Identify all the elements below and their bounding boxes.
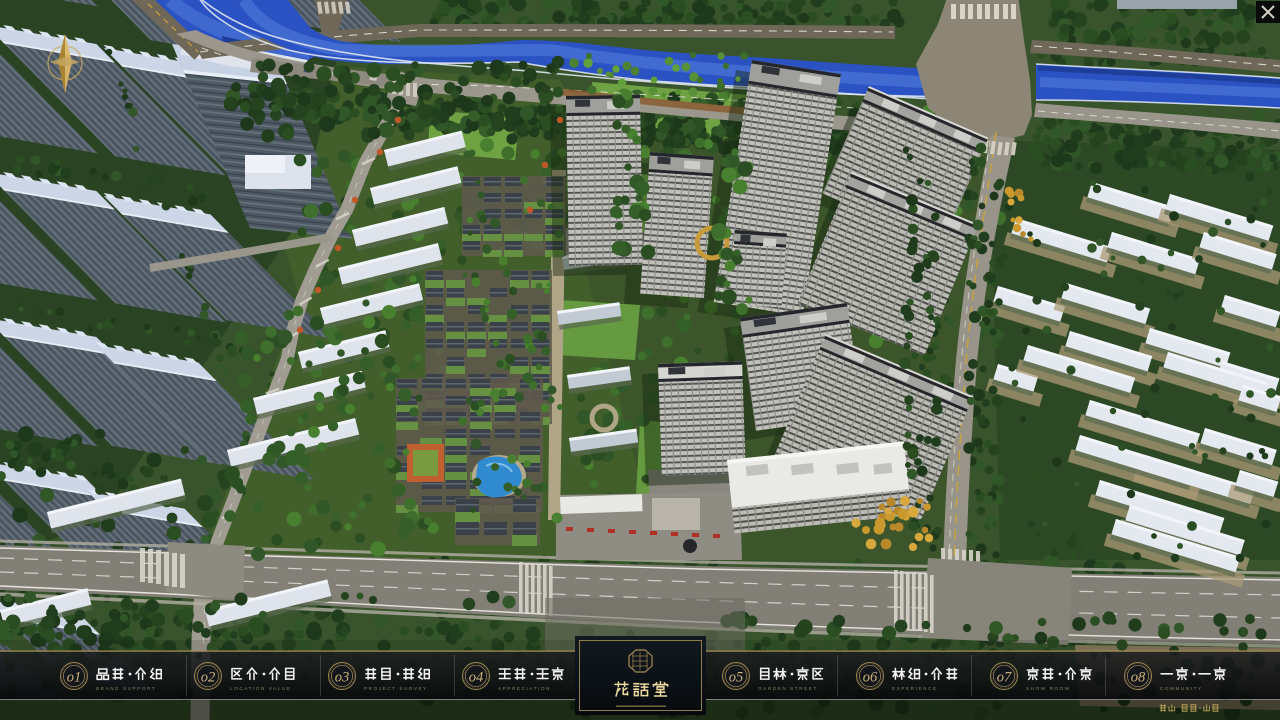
svg-text:GARDEN STREET: GARDEN STREET — [758, 686, 818, 691]
svg-text:BRAND SUPPORT: BRAND SUPPORT — [96, 686, 156, 691]
svg-text:APPRECIATION: APPRECIATION — [498, 686, 551, 691]
svg-text:LOCATION VALUE: LOCATION VALUE — [230, 686, 292, 691]
svg-text:SHOW ROOM: SHOW ROOM — [1026, 686, 1070, 691]
svg-text:o8: o8 — [1131, 670, 1146, 686]
svg-text:o4: o4 — [469, 670, 484, 686]
svg-text:o7: o7 — [997, 670, 1012, 686]
svg-text:o6: o6 — [863, 670, 878, 686]
svg-text:EXPERIENCE: EXPERIENCE — [892, 686, 938, 691]
svg-text:o3: o3 — [335, 670, 350, 686]
svg-text:o2: o2 — [201, 670, 216, 686]
svg-text:o5: o5 — [729, 670, 744, 686]
svg-text:o1: o1 — [67, 670, 82, 686]
svg-text:COMMUNITY: COMMUNITY — [1160, 686, 1203, 691]
svg-text:PROJECT SURVEY: PROJECT SURVEY — [364, 686, 428, 691]
